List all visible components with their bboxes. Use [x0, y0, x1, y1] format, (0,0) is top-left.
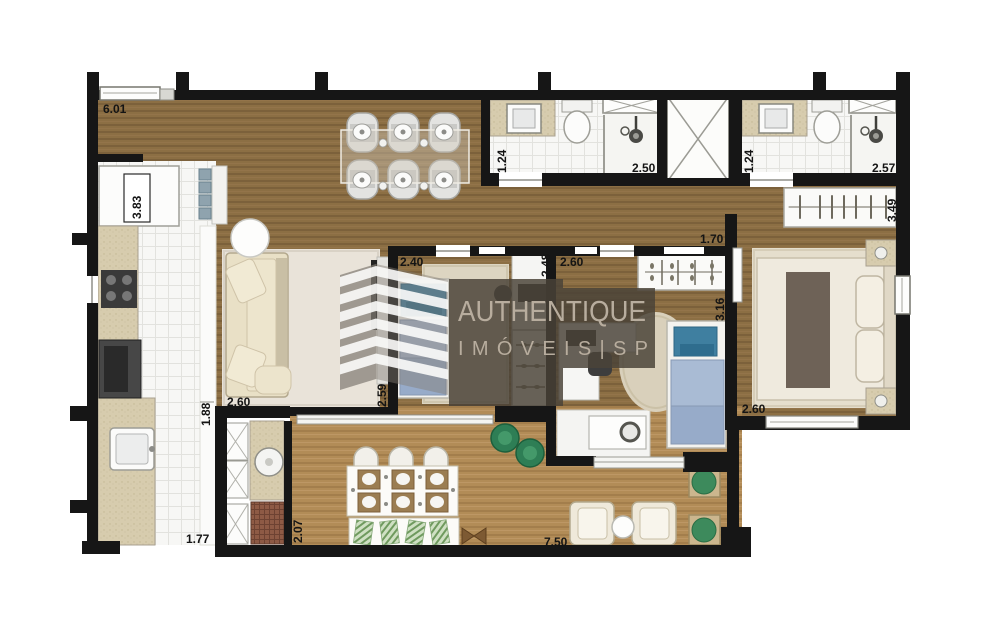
svg-text:1.88: 1.88: [199, 402, 213, 426]
svg-text:3.16: 3.16: [713, 297, 727, 321]
svg-text:2.59: 2.59: [375, 383, 389, 407]
svg-text:3.49: 3.49: [885, 198, 899, 222]
svg-text:2.57: 2.57: [872, 161, 896, 175]
svg-text:2.40: 2.40: [400, 255, 424, 269]
svg-text:2.07: 2.07: [291, 519, 305, 543]
svg-text:IMÓVEIS|SP: IMÓVEIS|SP: [458, 337, 648, 360]
svg-text:1.24: 1.24: [742, 149, 756, 173]
svg-text:2.60: 2.60: [227, 395, 251, 409]
svg-text:6.01: 6.01: [103, 102, 127, 116]
svg-text:1.70: 1.70: [700, 232, 724, 246]
svg-text:AUTHENTIQUE: AUTHENTIQUE: [458, 296, 646, 328]
svg-text:7.50: 7.50: [544, 535, 568, 549]
svg-text:2.50: 2.50: [632, 161, 656, 175]
svg-text:2.60: 2.60: [560, 255, 584, 269]
svg-text:3.83: 3.83: [130, 195, 144, 219]
svg-text:2.48: 2.48: [539, 253, 553, 277]
svg-text:1.77: 1.77: [186, 532, 210, 546]
svg-text:1.24: 1.24: [495, 149, 509, 173]
svg-text:2.60: 2.60: [742, 402, 766, 416]
